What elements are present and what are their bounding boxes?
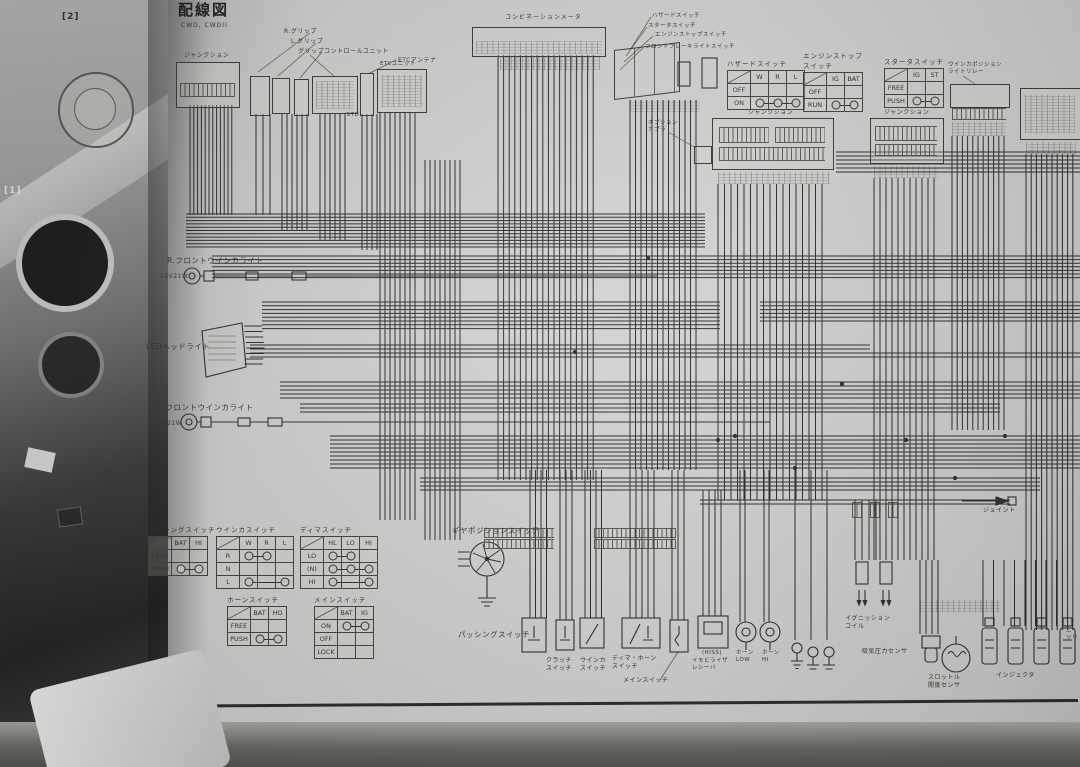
switch-contact-table: BATIGONOFFLOCK (314, 606, 374, 659)
table-cell: R (217, 550, 240, 563)
option-coupler-box (694, 146, 712, 164)
option-coupler-label: オプション カプラ (648, 120, 678, 134)
connector-pins (180, 83, 235, 97)
injector-icon (982, 618, 1075, 664)
table-cell (269, 633, 286, 645)
table-cell (324, 563, 342, 576)
table-cell: BAT (845, 73, 862, 86)
std-label: (STD) (344, 112, 362, 119)
table-cell: OFF (804, 86, 827, 99)
table-cell: HI (190, 537, 207, 550)
contact-dot (262, 552, 271, 561)
table-cell: R (769, 71, 787, 84)
table-cell: PUSH (228, 633, 251, 645)
passing-switch-label: パッシングスイッチ (458, 630, 530, 639)
table-cell: PUSH (149, 563, 172, 575)
main-switch-icon (670, 620, 688, 652)
winker-relay-label: ウインカポジション ライトリレー (948, 62, 1002, 76)
manual-photo: [2] [1] (0, 0, 1080, 767)
connector-pins (775, 127, 825, 143)
table-cell (338, 633, 356, 646)
table-cell (240, 563, 258, 576)
cluster-connectors (678, 58, 717, 88)
contact-dot (176, 565, 185, 574)
grip-l-label: L.グリップ (291, 38, 323, 46)
bulb-icon (181, 414, 770, 430)
inline-connector (484, 539, 554, 549)
table-cell: HI (301, 576, 324, 588)
table-cell (342, 550, 360, 563)
table-cell: (N) (301, 563, 324, 576)
contact-dot (791, 99, 800, 108)
table-cell: LO (342, 537, 360, 550)
table-cell (338, 620, 356, 633)
connector-pins (952, 108, 1006, 120)
engine-stop-callout: エンジンストップスイッチ (655, 32, 727, 39)
pin-codes (1026, 142, 1076, 154)
inline-connector (594, 528, 676, 538)
table-cell (301, 537, 324, 550)
table-cell (908, 95, 926, 107)
table-cell: L (217, 576, 240, 588)
winker-r-bulb-spec: 12V21W (160, 273, 188, 281)
contact-dot (831, 101, 840, 110)
switch-contact-table: IGSTFREEPUSH (884, 68, 944, 108)
switch-table-dimmer: ディマスイッチHLLOHILO(N)HI (300, 524, 378, 589)
inline-connector (594, 539, 676, 549)
switch-table-main: メインスイッチBATIGONOFFLOCK (314, 594, 374, 659)
table-cell (827, 86, 845, 99)
table-cell (845, 99, 862, 111)
table-cell: R (258, 537, 276, 550)
table-cell (360, 563, 377, 576)
junction-box-3 (870, 118, 944, 164)
table-cell (149, 537, 172, 550)
table-cell (172, 563, 190, 575)
dimmer-horn-switch-icon (622, 618, 660, 648)
table-cell (845, 86, 862, 99)
table-cell: HI (360, 537, 377, 550)
grip-control-unit-box (312, 76, 358, 114)
table-cell: OFF (315, 633, 338, 646)
switch-table-engine-stop: エンジンストップ スイッチIGBATOFFRUN (803, 50, 863, 112)
table-cell: BAT (338, 607, 356, 620)
contact-dot (342, 622, 351, 631)
dimmer-horn-label: ディマ・ホーン スイッチ (612, 655, 657, 670)
right-edge-unit-box (1020, 88, 1080, 140)
table-cell: BAT (172, 537, 190, 550)
contact-dot (244, 578, 253, 587)
main-switch-label: メインスイッチ (623, 677, 668, 685)
table-cell (190, 563, 207, 575)
table-cell (804, 73, 827, 86)
horn-icon (760, 622, 780, 650)
table-cell: PUSH (885, 95, 908, 107)
winker-switch-icon (580, 618, 604, 648)
contact-dot (328, 565, 337, 574)
contact-dot (912, 97, 921, 106)
table-cell: HO (269, 607, 286, 620)
immobilizer-label: イモビライザ レシーバ (692, 658, 728, 672)
grip-r-connector (250, 76, 270, 116)
connector-pins (719, 147, 825, 161)
page-subtitle: CWD, CWDII (181, 22, 228, 30)
table-cell: IG (908, 69, 926, 82)
contact-dot (346, 552, 355, 561)
switch-table-title: エンジンストップ スイッチ (803, 50, 863, 70)
junction2-label: ジャンクション (748, 109, 793, 117)
page-title: 配線図 (178, 1, 229, 20)
switch-table-title: パッシングスイッチ (148, 524, 216, 534)
table-cell (251, 633, 269, 645)
inline-connector (888, 502, 898, 518)
pin-codes (920, 600, 1000, 612)
ignition-coil-label: イグニッション コイル (845, 615, 890, 630)
table-cell (787, 97, 804, 109)
contact-dot (360, 622, 369, 631)
winker-relay-box (950, 84, 1010, 108)
combination-meter-box (472, 27, 606, 57)
table-cell: N (217, 563, 240, 576)
switch-contact-table: IGBATOFFRUN (803, 72, 863, 112)
table-cell (926, 82, 943, 95)
hiss-label: (HISS) (702, 650, 722, 657)
junction-box-1 (176, 62, 240, 108)
contact-dot (346, 565, 355, 574)
switch-table-title: スタータスイッチ (884, 56, 944, 66)
junction-box-2 (712, 118, 834, 170)
table-cell: ON (728, 97, 751, 109)
contact-dot (244, 552, 253, 561)
pin-codes (316, 81, 354, 109)
switch-table-title: ハザードスイッチ (727, 58, 805, 68)
injector-label: インジェクタ (996, 672, 1035, 680)
winker-l-bulb-spec: 12V21W (154, 420, 182, 428)
table-cell (751, 84, 769, 97)
switch-table-passing: パッシングスイッチBATHIFREEPUSH (148, 524, 216, 576)
switch-contact-table: WRLOFFON (727, 70, 805, 110)
junction3-label: ジャンクション (884, 109, 929, 117)
table-cell: FREE (885, 82, 908, 95)
pin-codes (874, 166, 938, 178)
table-cell (240, 576, 258, 588)
spark-plug-icon (791, 643, 835, 669)
table-cell: L (787, 71, 804, 84)
table-cell: OFF (728, 84, 751, 97)
ignition-coil-icon (856, 562, 892, 605)
switch-table-starter: スタータスイッチIGSTFREEPUSH (884, 56, 944, 108)
table-cell (342, 576, 360, 588)
table-cell (338, 646, 356, 658)
pin-codes (952, 122, 1006, 136)
table-cell (315, 607, 338, 620)
table-cell: RUN (804, 99, 827, 111)
table-cell (827, 99, 845, 111)
grip-control-label: グリップコントロールユニット (298, 48, 389, 56)
table-cell: IG (356, 607, 373, 620)
contact-dot (364, 578, 373, 587)
table-cell (228, 607, 251, 620)
table-cell (258, 576, 276, 588)
winker-r-label: R.フロントウインカライト (167, 256, 263, 265)
contact-dot (755, 99, 764, 108)
table-cell (360, 550, 377, 563)
table-cell (258, 563, 276, 576)
table-cell: HL (324, 537, 342, 550)
connector-pins (875, 126, 937, 141)
table-cell (258, 550, 276, 563)
table-cell (217, 537, 240, 550)
etc-unit-label: ETCユニット (380, 61, 416, 68)
switch-table-title: ホーンスイッチ (227, 594, 287, 604)
table-cell (908, 82, 926, 95)
gear-position-switch-icon (458, 542, 504, 606)
immobilizer-receiver-icon (698, 616, 728, 648)
table-cell (728, 71, 751, 84)
switch-contact-table: BATHIFREEPUSH (148, 536, 208, 576)
table-cell: LOCK (315, 646, 338, 658)
table-cell (240, 550, 258, 563)
pin-codes (630, 100, 700, 112)
table-cell: ST (926, 69, 943, 82)
throttle-sensor-icon (942, 636, 970, 672)
table-cell (787, 84, 804, 97)
contact-dot (364, 565, 373, 574)
contact-dot (273, 635, 282, 644)
table-cell (324, 550, 342, 563)
table-cell (172, 550, 190, 563)
table-cell (356, 620, 373, 633)
etc-unit-box (377, 69, 427, 113)
table-cell: FREE (228, 620, 251, 633)
grip-r-label: R.グリップ (284, 28, 317, 36)
table-cell: FREE (149, 550, 172, 563)
table-cell: LO (301, 550, 324, 563)
pin-codes (500, 57, 600, 70)
table-cell: L (276, 537, 293, 550)
table-cell: W (751, 71, 769, 84)
table-cell (324, 576, 342, 588)
gear-switch-label: ギヤポジションスイッチ (452, 526, 540, 535)
contact-dot (930, 97, 939, 106)
grip-connector (294, 79, 309, 116)
horn-icon (736, 622, 756, 650)
pin-codes (382, 75, 422, 107)
table-cell (251, 620, 269, 633)
table-cell (276, 576, 293, 588)
connector-pins (719, 127, 769, 143)
winker-switch-label: ウインカ スイッチ (580, 657, 606, 672)
grip-l-connector (272, 78, 290, 114)
contact-dot (328, 578, 337, 587)
brake-light-callout: フロントブレーキライトスイッチ (645, 44, 735, 51)
switch-table-horn: ホーンスイッチBATHOFREEPUSH (227, 594, 287, 646)
table-cell (769, 97, 787, 109)
table-cell (751, 97, 769, 109)
table-cell (342, 563, 360, 576)
contact-dot (773, 99, 782, 108)
switch-contact-table: HLLOHILO(N)HI (300, 536, 378, 589)
headlight-label: LEDヘッドライト (146, 342, 210, 351)
headlight-unit-icon (202, 323, 264, 377)
switch-contact-table: BATHOFREEPUSH (227, 606, 287, 646)
switch-contact-table: WRLRNL (216, 536, 294, 589)
table-cell (769, 84, 787, 97)
junction1-label: ジャンクション (184, 52, 229, 60)
table-cell (276, 550, 293, 563)
intake-sensor-label: 吸気圧力センサ (862, 648, 908, 656)
inline-connector (870, 502, 880, 518)
switch-table-winker: ウインカスイッチWRLRNL (216, 524, 294, 589)
table-cell (356, 633, 373, 646)
throttle-sensor-label: スロットル 開度センサ (928, 674, 961, 689)
cutoff-label: ニ ソリ (1066, 628, 1078, 642)
table-cell (926, 95, 943, 107)
horn-low-label: ホーン LOW (736, 650, 754, 664)
table-cell (269, 620, 286, 633)
pin-codes (1025, 95, 1075, 133)
table-cell (885, 69, 908, 82)
switch-table-hazard: ハザードスイッチWRLOFFON (727, 58, 805, 110)
hazard-callout: ハザードスイッチ (652, 13, 700, 20)
table-cell: IG (827, 73, 845, 86)
table-cell (356, 646, 373, 658)
joint-label: ジョイント (983, 507, 1016, 515)
table-cell: ON (315, 620, 338, 633)
etc-antenna-box (360, 73, 374, 116)
table-cell: BAT (251, 607, 269, 620)
table-cell: W (240, 537, 258, 550)
switch-table-title: ディマスイッチ (300, 524, 378, 534)
pin-codes (718, 172, 830, 184)
switch-table-title: メインスイッチ (314, 594, 374, 604)
table-cell (360, 576, 377, 588)
contact-dot (849, 101, 858, 110)
pin-codes (476, 41, 602, 54)
connector-pins (875, 144, 937, 156)
table-cell (276, 563, 293, 576)
clutch-switch-icon (556, 620, 574, 650)
contact-dot (255, 635, 264, 644)
clutch-switch-label: クラッチ スイッチ (546, 657, 572, 672)
switch-table-title: ウインカスイッチ (216, 524, 294, 534)
winker-l-label: L.フロントウインカライト (158, 403, 254, 412)
horn-hi-label: ホーン HI (762, 650, 780, 664)
contact-dot (328, 552, 337, 561)
contact-dot (194, 565, 203, 574)
contact-dot (280, 578, 289, 587)
meter-label: コンビネーションメータ (505, 14, 582, 22)
starter-callout: スタータスイッチ (648, 23, 696, 30)
intake-pressure-sensor-icon (922, 636, 940, 662)
table-cell (190, 550, 207, 563)
inline-connector (852, 502, 862, 518)
